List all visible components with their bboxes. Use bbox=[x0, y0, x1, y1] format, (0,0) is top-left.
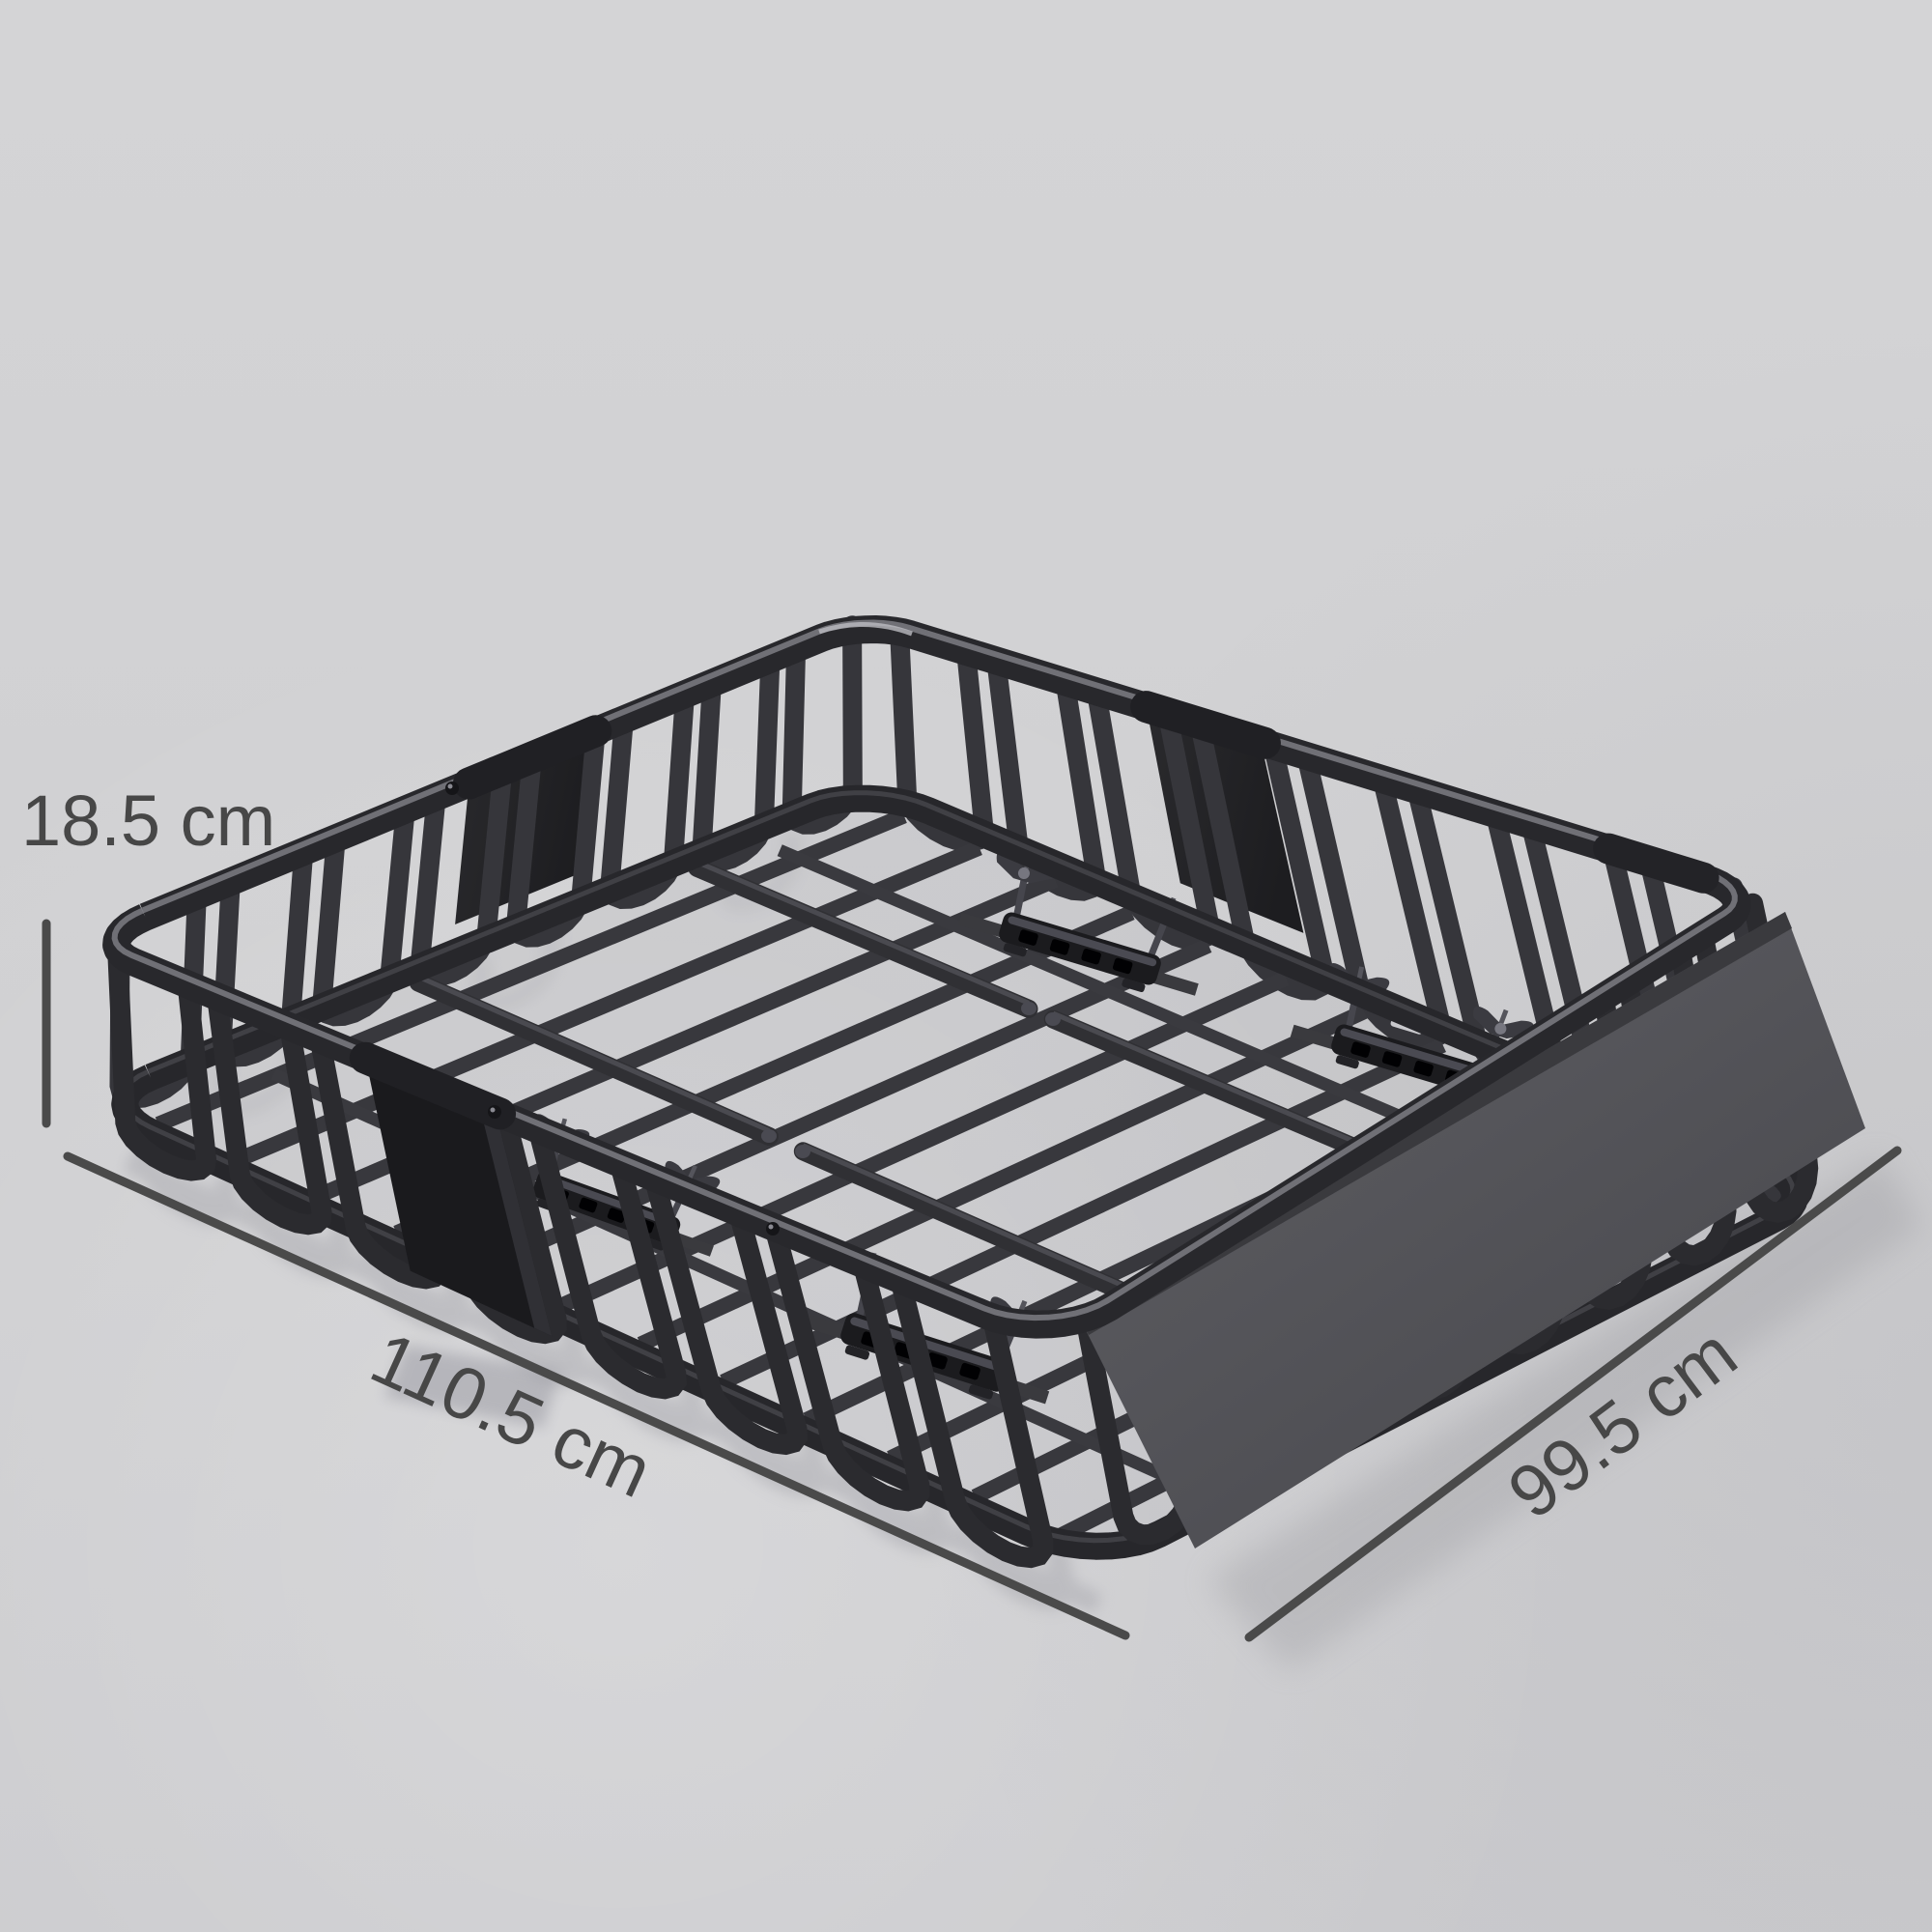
svg-text:18.5 cm: 18.5 cm bbox=[21, 781, 275, 861]
